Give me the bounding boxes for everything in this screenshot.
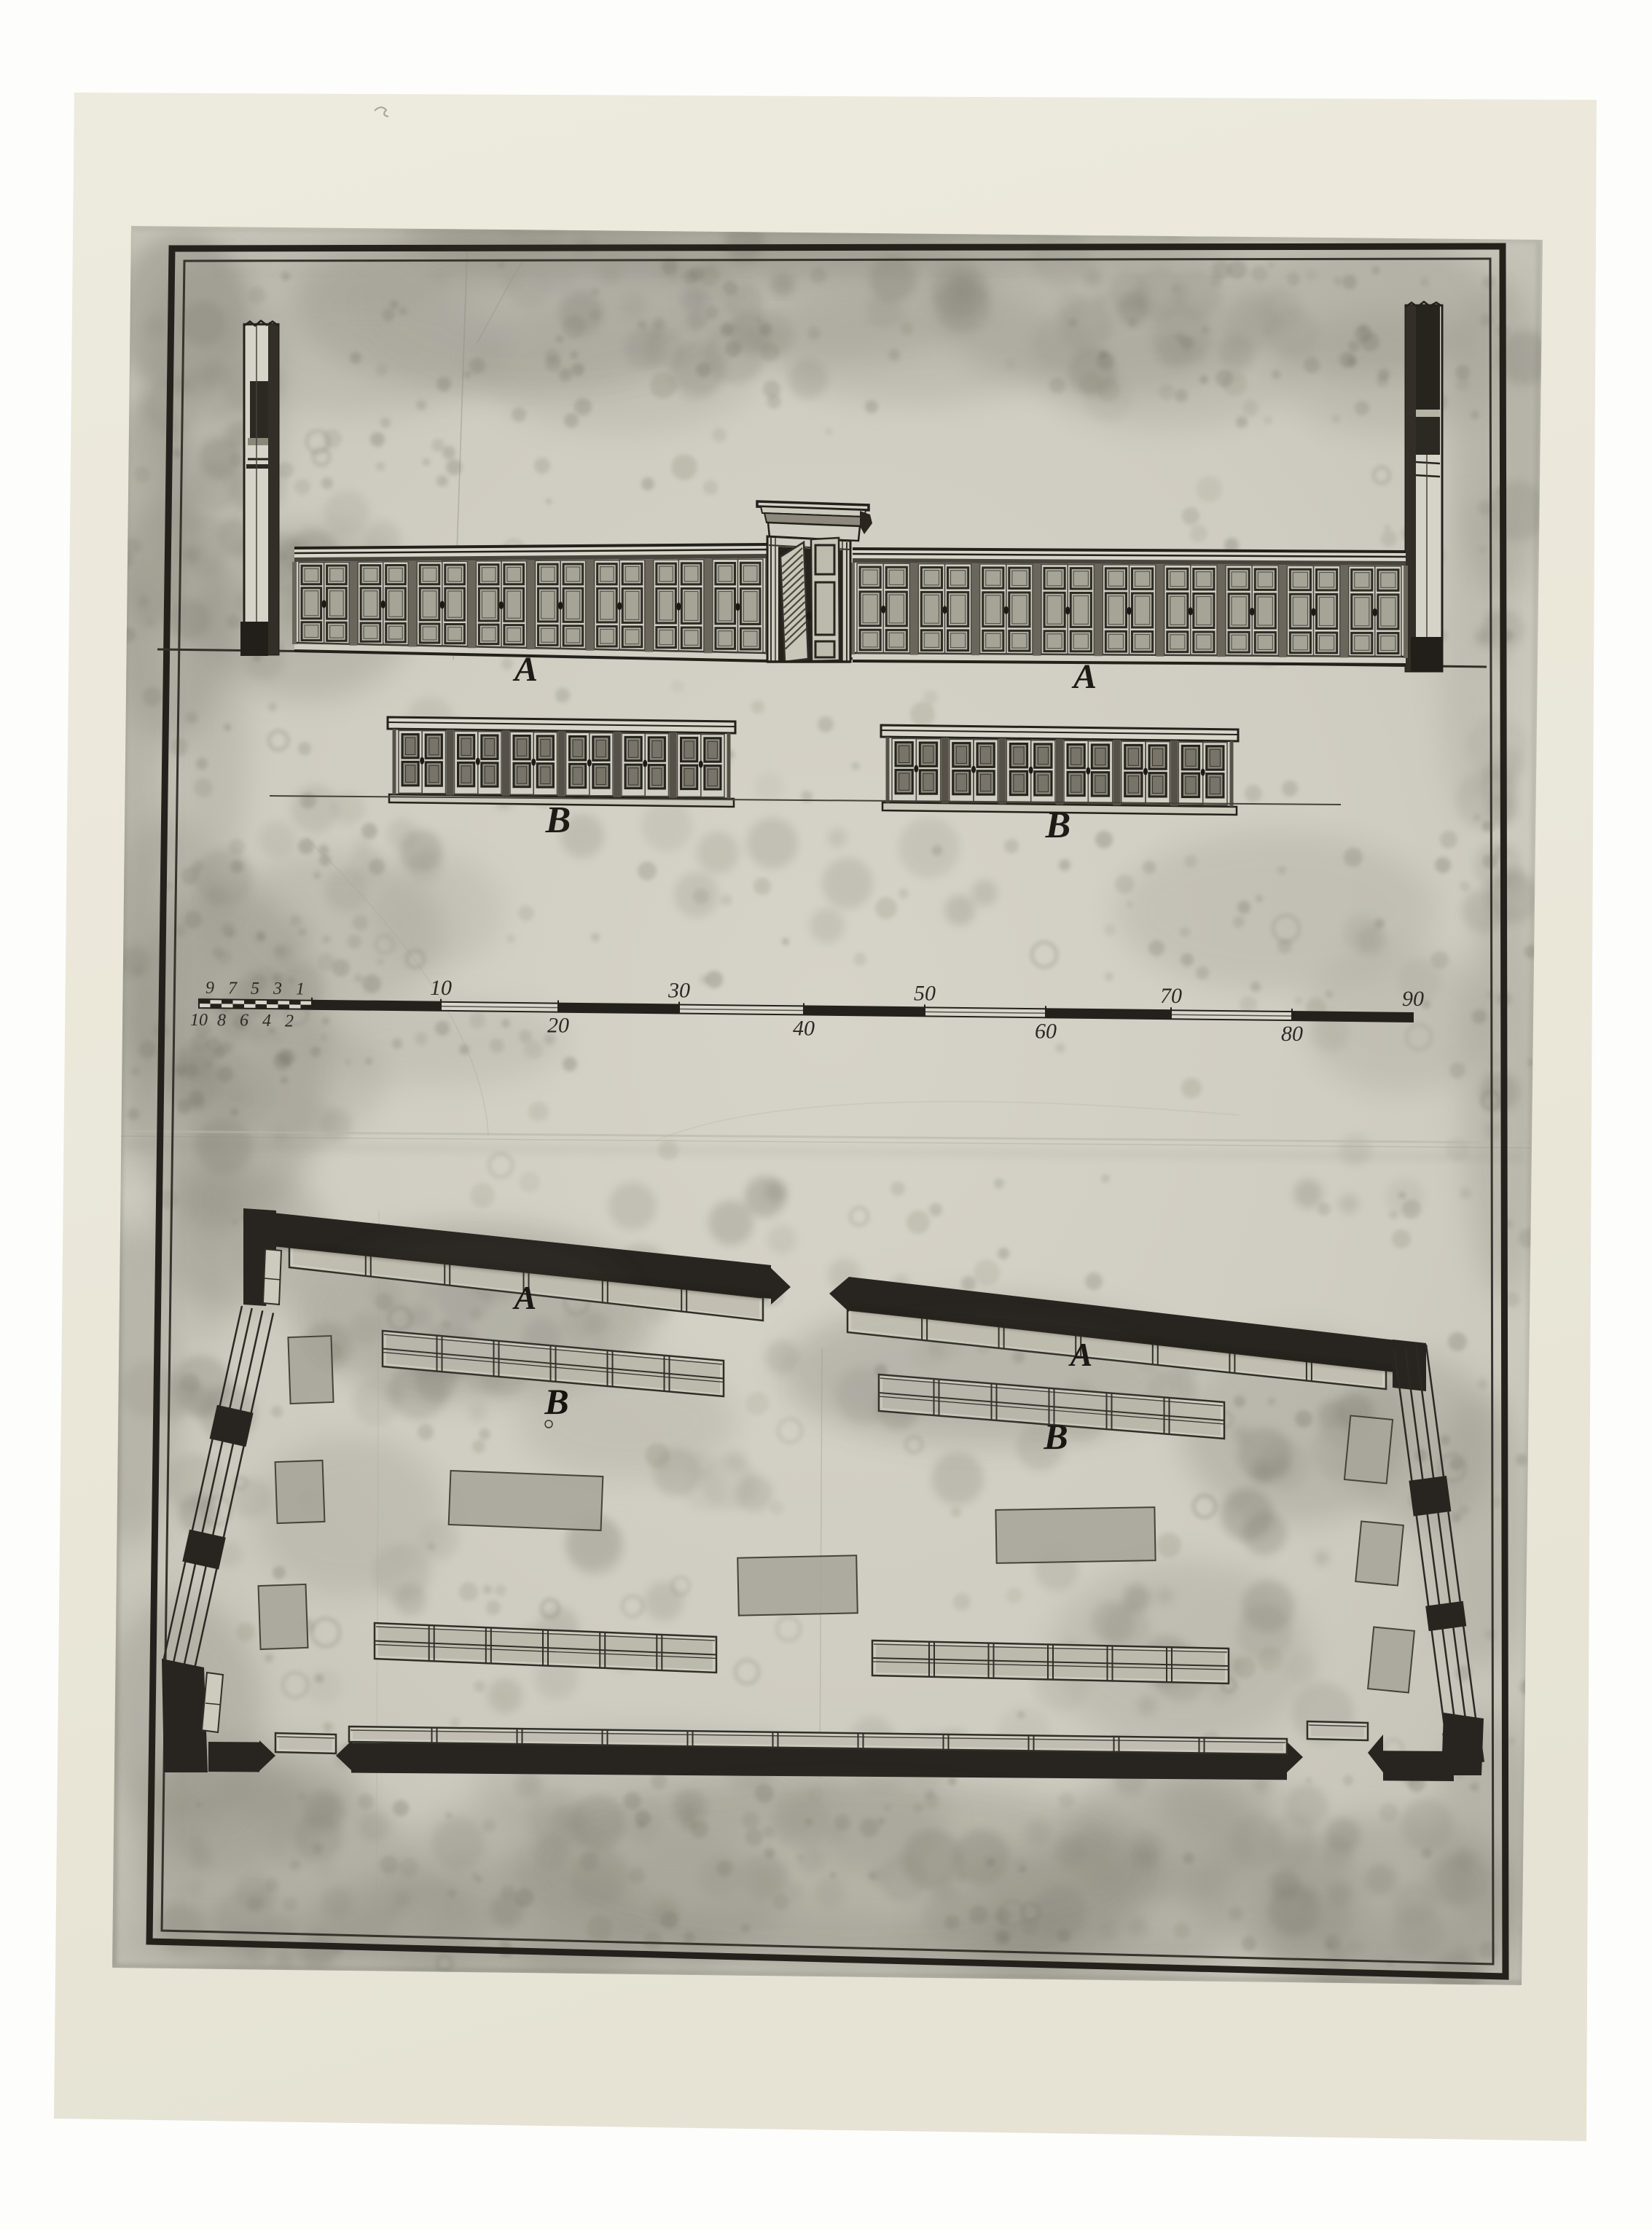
svg-text:10: 10 (190, 1011, 208, 1030)
svg-text:70: 70 (1160, 984, 1182, 1008)
svg-text:8: 8 (217, 1011, 226, 1030)
svg-text:40: 40 (793, 1017, 815, 1041)
svg-text:10: 10 (430, 976, 452, 1000)
svg-text:20: 20 (547, 1014, 569, 1038)
svg-text:50: 50 (914, 981, 936, 1005)
svg-text:90: 90 (1402, 987, 1424, 1011)
svg-text:7: 7 (228, 979, 238, 998)
svg-text:A: A (512, 650, 538, 689)
svg-text:B: B (544, 1381, 568, 1422)
svg-text:6: 6 (240, 1012, 248, 1031)
svg-text:B: B (1045, 805, 1071, 846)
svg-text:9: 9 (205, 979, 214, 998)
svg-text:4: 4 (262, 1012, 271, 1031)
svg-text:2: 2 (285, 1012, 294, 1031)
svg-text:A: A (1071, 657, 1097, 696)
svg-text:3: 3 (273, 979, 282, 998)
svg-text:30: 30 (668, 979, 690, 1003)
svg-text:5: 5 (251, 979, 259, 998)
svg-text:B: B (545, 799, 571, 841)
svg-text:80: 80 (1281, 1022, 1303, 1046)
svg-text:1: 1 (296, 980, 305, 999)
svg-text:60: 60 (1035, 1019, 1057, 1043)
